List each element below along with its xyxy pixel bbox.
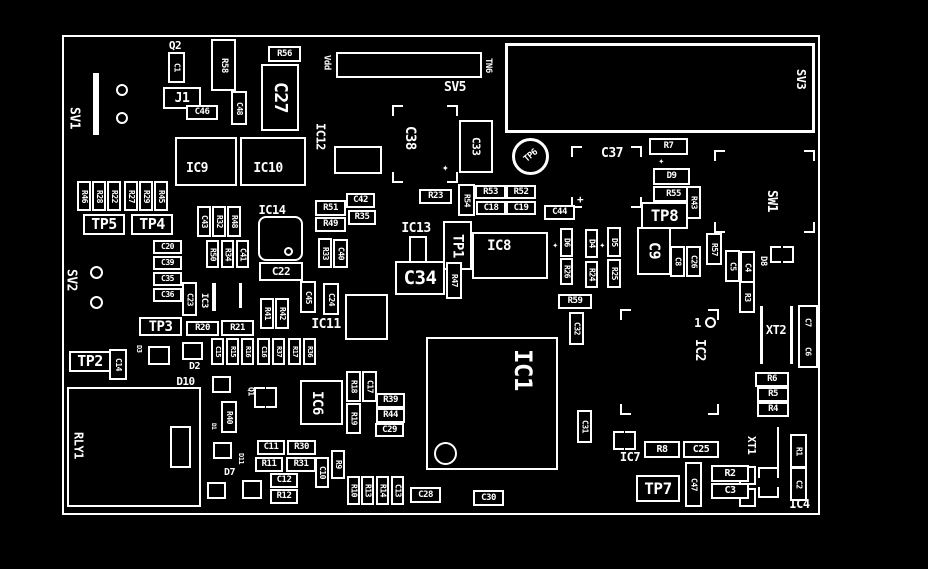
component-R49: R49: [315, 217, 346, 232]
component-R58: R58: [211, 39, 236, 91]
component-C29: C29: [375, 423, 404, 437]
corner-bracket: [708, 404, 719, 415]
rly1-inner: [170, 426, 191, 468]
component-IC12: IC12: [311, 113, 330, 159]
corner-bracket: [804, 222, 815, 233]
component-C27: C27: [261, 64, 299, 131]
component-R24: R24: [585, 261, 598, 288]
component-R47: R47: [446, 262, 462, 299]
component-C33: C33: [459, 120, 493, 173]
component-outline: [613, 431, 636, 450]
component-C25: C25: [683, 441, 719, 458]
component-C1: C1: [168, 52, 185, 83]
component-C38: C38: [398, 110, 422, 166]
component-R44: R44: [376, 408, 405, 423]
component-outline: [213, 442, 232, 459]
component-R33: R33: [318, 238, 332, 268]
component-C3: C3: [711, 483, 749, 499]
component-R31: R31: [286, 457, 316, 472]
component-outline: [254, 387, 277, 408]
corner-bracket: [192, 349, 203, 360]
component-R17: R17: [288, 338, 301, 365]
component-R14: R14: [376, 476, 389, 505]
component-C11: C11: [257, 440, 285, 455]
mounting-hole: [90, 296, 103, 309]
component-D3: D3: [132, 340, 145, 358]
component-C45: C45: [300, 281, 316, 313]
component-C10: C10: [315, 457, 329, 488]
pin1-label: 1: [693, 315, 702, 330]
corner-bracket: [159, 354, 170, 365]
component-C24: C24: [323, 283, 339, 315]
component-outline: [758, 467, 779, 498]
component-outline: [182, 342, 203, 360]
xt1-electrode: [777, 427, 779, 467]
component-outline: [148, 346, 170, 365]
corner-bracket: [714, 150, 725, 161]
pin1-marker: [434, 442, 457, 465]
mounting-hole: [90, 266, 103, 279]
component-SV2: SV2: [63, 251, 79, 309]
component-C13: C13: [391, 476, 404, 505]
component-D2: D2: [185, 361, 204, 372]
component-TP5: TP5: [83, 214, 125, 235]
component-C43: C43: [197, 206, 211, 237]
ic14-body: [258, 216, 303, 261]
component-D10: D10: [171, 375, 200, 387]
corner-bracket: [620, 309, 631, 320]
component-IC3: IC3: [197, 284, 210, 317]
component-C8: C8: [670, 246, 685, 277]
component-R12: R12: [270, 489, 298, 504]
component-R39: R39: [376, 393, 405, 408]
component-IC9: IC9: [179, 160, 215, 177]
component-R32: R32: [212, 206, 226, 237]
polarity-marker: +: [574, 193, 586, 205]
component-TP4: TP4: [131, 214, 173, 235]
component-XT1: XT1: [744, 426, 759, 465]
corner-bracket: [220, 382, 231, 393]
component-R18: R18: [346, 371, 361, 402]
component-C5: C5: [725, 250, 740, 282]
component-D9: D9: [653, 168, 690, 185]
component-IC1: IC1: [501, 341, 545, 399]
ic3-body: [212, 283, 216, 311]
corner-bracket: [804, 150, 815, 161]
polarity-marker: ✦: [655, 156, 667, 168]
component-C30: C30: [473, 490, 504, 506]
ic3-pad: [239, 283, 242, 308]
component-C47: C47: [685, 462, 702, 507]
component-R22: R22: [107, 181, 121, 211]
component-C12: C12: [270, 473, 298, 488]
component-R37: R37: [272, 338, 285, 365]
component-R35: R35: [348, 210, 376, 225]
component-R11: R11: [255, 457, 283, 472]
component-Q2: Q2: [164, 39, 186, 51]
component-R5: R5: [757, 387, 789, 402]
corner-bracket: [251, 488, 262, 499]
component-C22: C22: [259, 262, 303, 281]
mounting-hole: [116, 84, 128, 96]
component-R9: R9: [331, 450, 345, 479]
corner-bracket: [770, 252, 781, 263]
corner-bracket: [447, 105, 458, 116]
component-IC6: IC6: [306, 384, 328, 422]
component-SW1: SW1: [759, 178, 784, 223]
component-outline: [242, 480, 262, 499]
component-C32: C32: [569, 312, 584, 345]
component-C42: C42: [346, 193, 375, 208]
component-R56: R56: [268, 46, 301, 62]
component-R8: R8: [644, 441, 680, 458]
component-C36: C36: [153, 288, 182, 302]
component-C15: C15: [211, 338, 224, 365]
component-C31: C31: [577, 410, 592, 443]
component-C23: C23: [182, 282, 197, 316]
component-R43: R43: [686, 186, 701, 219]
component-C16: C16: [257, 338, 270, 365]
component-C48: C48: [231, 91, 247, 125]
component-R20: R20: [186, 321, 219, 336]
component-C4: C4: [740, 251, 755, 283]
corner-bracket: [613, 439, 624, 450]
component-R26: R26: [560, 258, 573, 285]
component-IC11: IC11: [302, 316, 350, 332]
component-D1: D1: [208, 418, 218, 434]
component-D6: D6: [560, 228, 573, 257]
component-R41: R41: [260, 298, 274, 329]
component-Vdd: Vdd: [319, 46, 333, 78]
component-R7: R7: [649, 138, 688, 155]
corner-bracket: [768, 467, 779, 478]
component-R4: R4: [757, 402, 789, 417]
component-C18: C18: [476, 201, 506, 215]
sv1-pin-bar: [93, 73, 99, 135]
component-TP3: TP3: [139, 317, 182, 336]
component-R48: R48: [227, 206, 241, 237]
component-C28: C28: [410, 487, 441, 503]
component-outline: [212, 376, 231, 393]
component-TP2: TP2: [69, 351, 111, 372]
component-R13: R13: [361, 476, 374, 505]
component-R25: R25: [607, 259, 621, 288]
component-IC14: IC14: [251, 202, 293, 217]
corner-bracket: [392, 172, 403, 183]
component-R30: R30: [287, 440, 316, 455]
component-R23: R23: [419, 189, 452, 204]
sv5-connector: [336, 52, 482, 78]
component-C26: C26: [686, 246, 701, 277]
component-C14: C14: [109, 349, 127, 380]
corner-bracket: [620, 404, 631, 415]
component-IC10: IC10: [244, 160, 292, 177]
component-R15: R15: [226, 338, 239, 365]
component-C19: C19: [506, 201, 536, 215]
component-IC2: IC2: [690, 331, 709, 368]
component-C39: C39: [153, 256, 182, 270]
component-C34: C34: [395, 261, 445, 295]
polarity-marker: ✦: [438, 160, 452, 174]
component-C37: C37: [591, 146, 633, 161]
component-outline: [770, 246, 794, 263]
component-D5: D5: [607, 227, 621, 257]
component-C6: C6: [800, 338, 815, 365]
component-TN6: TN6: [481, 50, 494, 80]
component-IC4: IC4: [785, 496, 814, 511]
component-SV1: SV1: [66, 92, 82, 144]
component-R51: R51: [315, 200, 346, 216]
sv3-body: [505, 43, 815, 133]
component-R2: R2: [711, 465, 749, 482]
component-TP8: TP8: [641, 202, 688, 229]
corner-bracket: [571, 146, 582, 157]
pin1-marker: [284, 247, 293, 256]
component-C35: C35: [153, 272, 182, 286]
component-outline: [207, 482, 226, 499]
corner-bracket: [783, 252, 794, 263]
ic12-body: [334, 146, 382, 174]
component-C9: C9: [637, 227, 671, 275]
component-R36: R36: [303, 338, 316, 365]
component-R1: R1: [790, 434, 807, 468]
component-TP7: TP7: [636, 475, 680, 502]
corner-bracket: [266, 397, 277, 408]
component-R40: R40: [221, 401, 237, 433]
component-R19: R19: [346, 403, 361, 434]
component-D7: D7: [221, 467, 238, 479]
component-SV3: SV3: [792, 57, 810, 101]
component-R10: R10: [347, 476, 360, 505]
corner-bracket: [714, 222, 725, 233]
corner-bracket: [221, 448, 232, 459]
component-R53: R53: [475, 185, 506, 199]
corner-bracket: [215, 488, 226, 499]
component-IC8: IC8: [481, 237, 517, 254]
pcb-layout-canvas: SV1Q2C1R58J1C46C48R56C27VddTN6SV5IC12C38…: [0, 0, 928, 569]
component-R50: R50: [206, 240, 219, 268]
component-IC13: IC13: [395, 220, 437, 236]
component-R45: R45: [154, 181, 168, 211]
component-R3: R3: [739, 281, 755, 313]
component-XT2: XT2: [762, 322, 790, 337]
component-RLY1: RLY1: [70, 418, 87, 472]
component-C17: C17: [362, 371, 377, 402]
component-C41: C41: [236, 240, 249, 268]
corner-bracket: [625, 439, 636, 450]
component-C40: C40: [333, 239, 348, 268]
ic11-body: [345, 294, 388, 340]
component-SV5: SV5: [436, 80, 474, 94]
component-C7: C7: [800, 309, 815, 336]
component-R6: R6: [755, 372, 789, 387]
component-D8: D8: [756, 250, 769, 271]
component-R46: R46: [77, 181, 91, 211]
component-C20: C20: [153, 240, 182, 254]
corner-bracket: [254, 397, 265, 408]
component-R28: R28: [92, 181, 106, 211]
component-C46: C46: [186, 105, 218, 120]
component-R57: R57: [706, 233, 722, 265]
component-R52: R52: [506, 185, 536, 199]
component-R34: R34: [221, 240, 234, 268]
xt2-electrode: [790, 306, 793, 364]
corner-bracket: [148, 354, 159, 365]
component-C44: C44: [544, 205, 575, 220]
component-R54: R54: [458, 184, 475, 216]
component-R29: R29: [139, 181, 153, 211]
component-R16: R16: [241, 338, 254, 365]
ic13-body: [409, 236, 427, 264]
component-R59: R59: [558, 294, 592, 309]
corner-bracket: [768, 487, 779, 498]
pin1-marker: [705, 317, 716, 328]
component-R27: R27: [124, 181, 138, 211]
mounting-hole: [116, 112, 128, 124]
component-R42: R42: [275, 298, 289, 329]
component-R21: R21: [221, 320, 254, 336]
component-D4: D4: [585, 229, 598, 258]
component-IC7: IC7: [615, 450, 645, 464]
